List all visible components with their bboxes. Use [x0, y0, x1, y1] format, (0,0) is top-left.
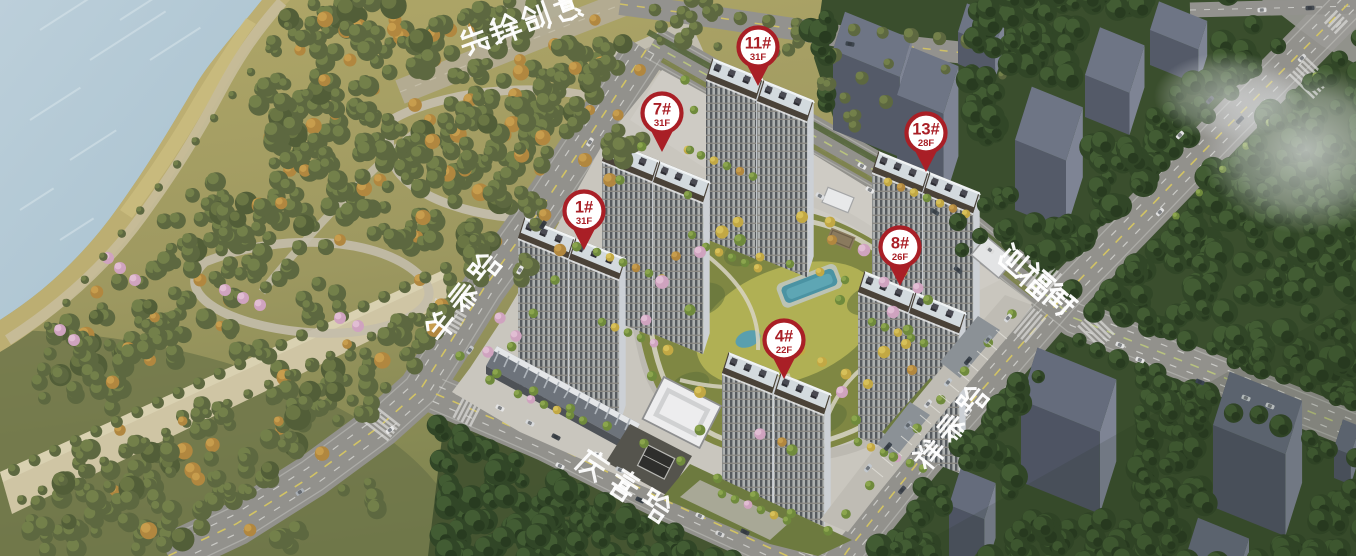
- svg-text:7#: 7#: [653, 101, 671, 119]
- svg-text:31F: 31F: [750, 52, 767, 63]
- svg-text:4#: 4#: [775, 328, 793, 346]
- svg-text:31F: 31F: [654, 118, 671, 129]
- svg-text:26F: 26F: [892, 252, 909, 263]
- svg-text:1#: 1#: [575, 199, 593, 217]
- svg-text:22F: 22F: [776, 345, 793, 356]
- svg-text:13#: 13#: [912, 121, 940, 139]
- svg-text:31F: 31F: [576, 216, 593, 227]
- svg-text:8#: 8#: [891, 235, 909, 253]
- svg-text:11#: 11#: [745, 35, 772, 53]
- svg-text:28F: 28F: [918, 138, 935, 149]
